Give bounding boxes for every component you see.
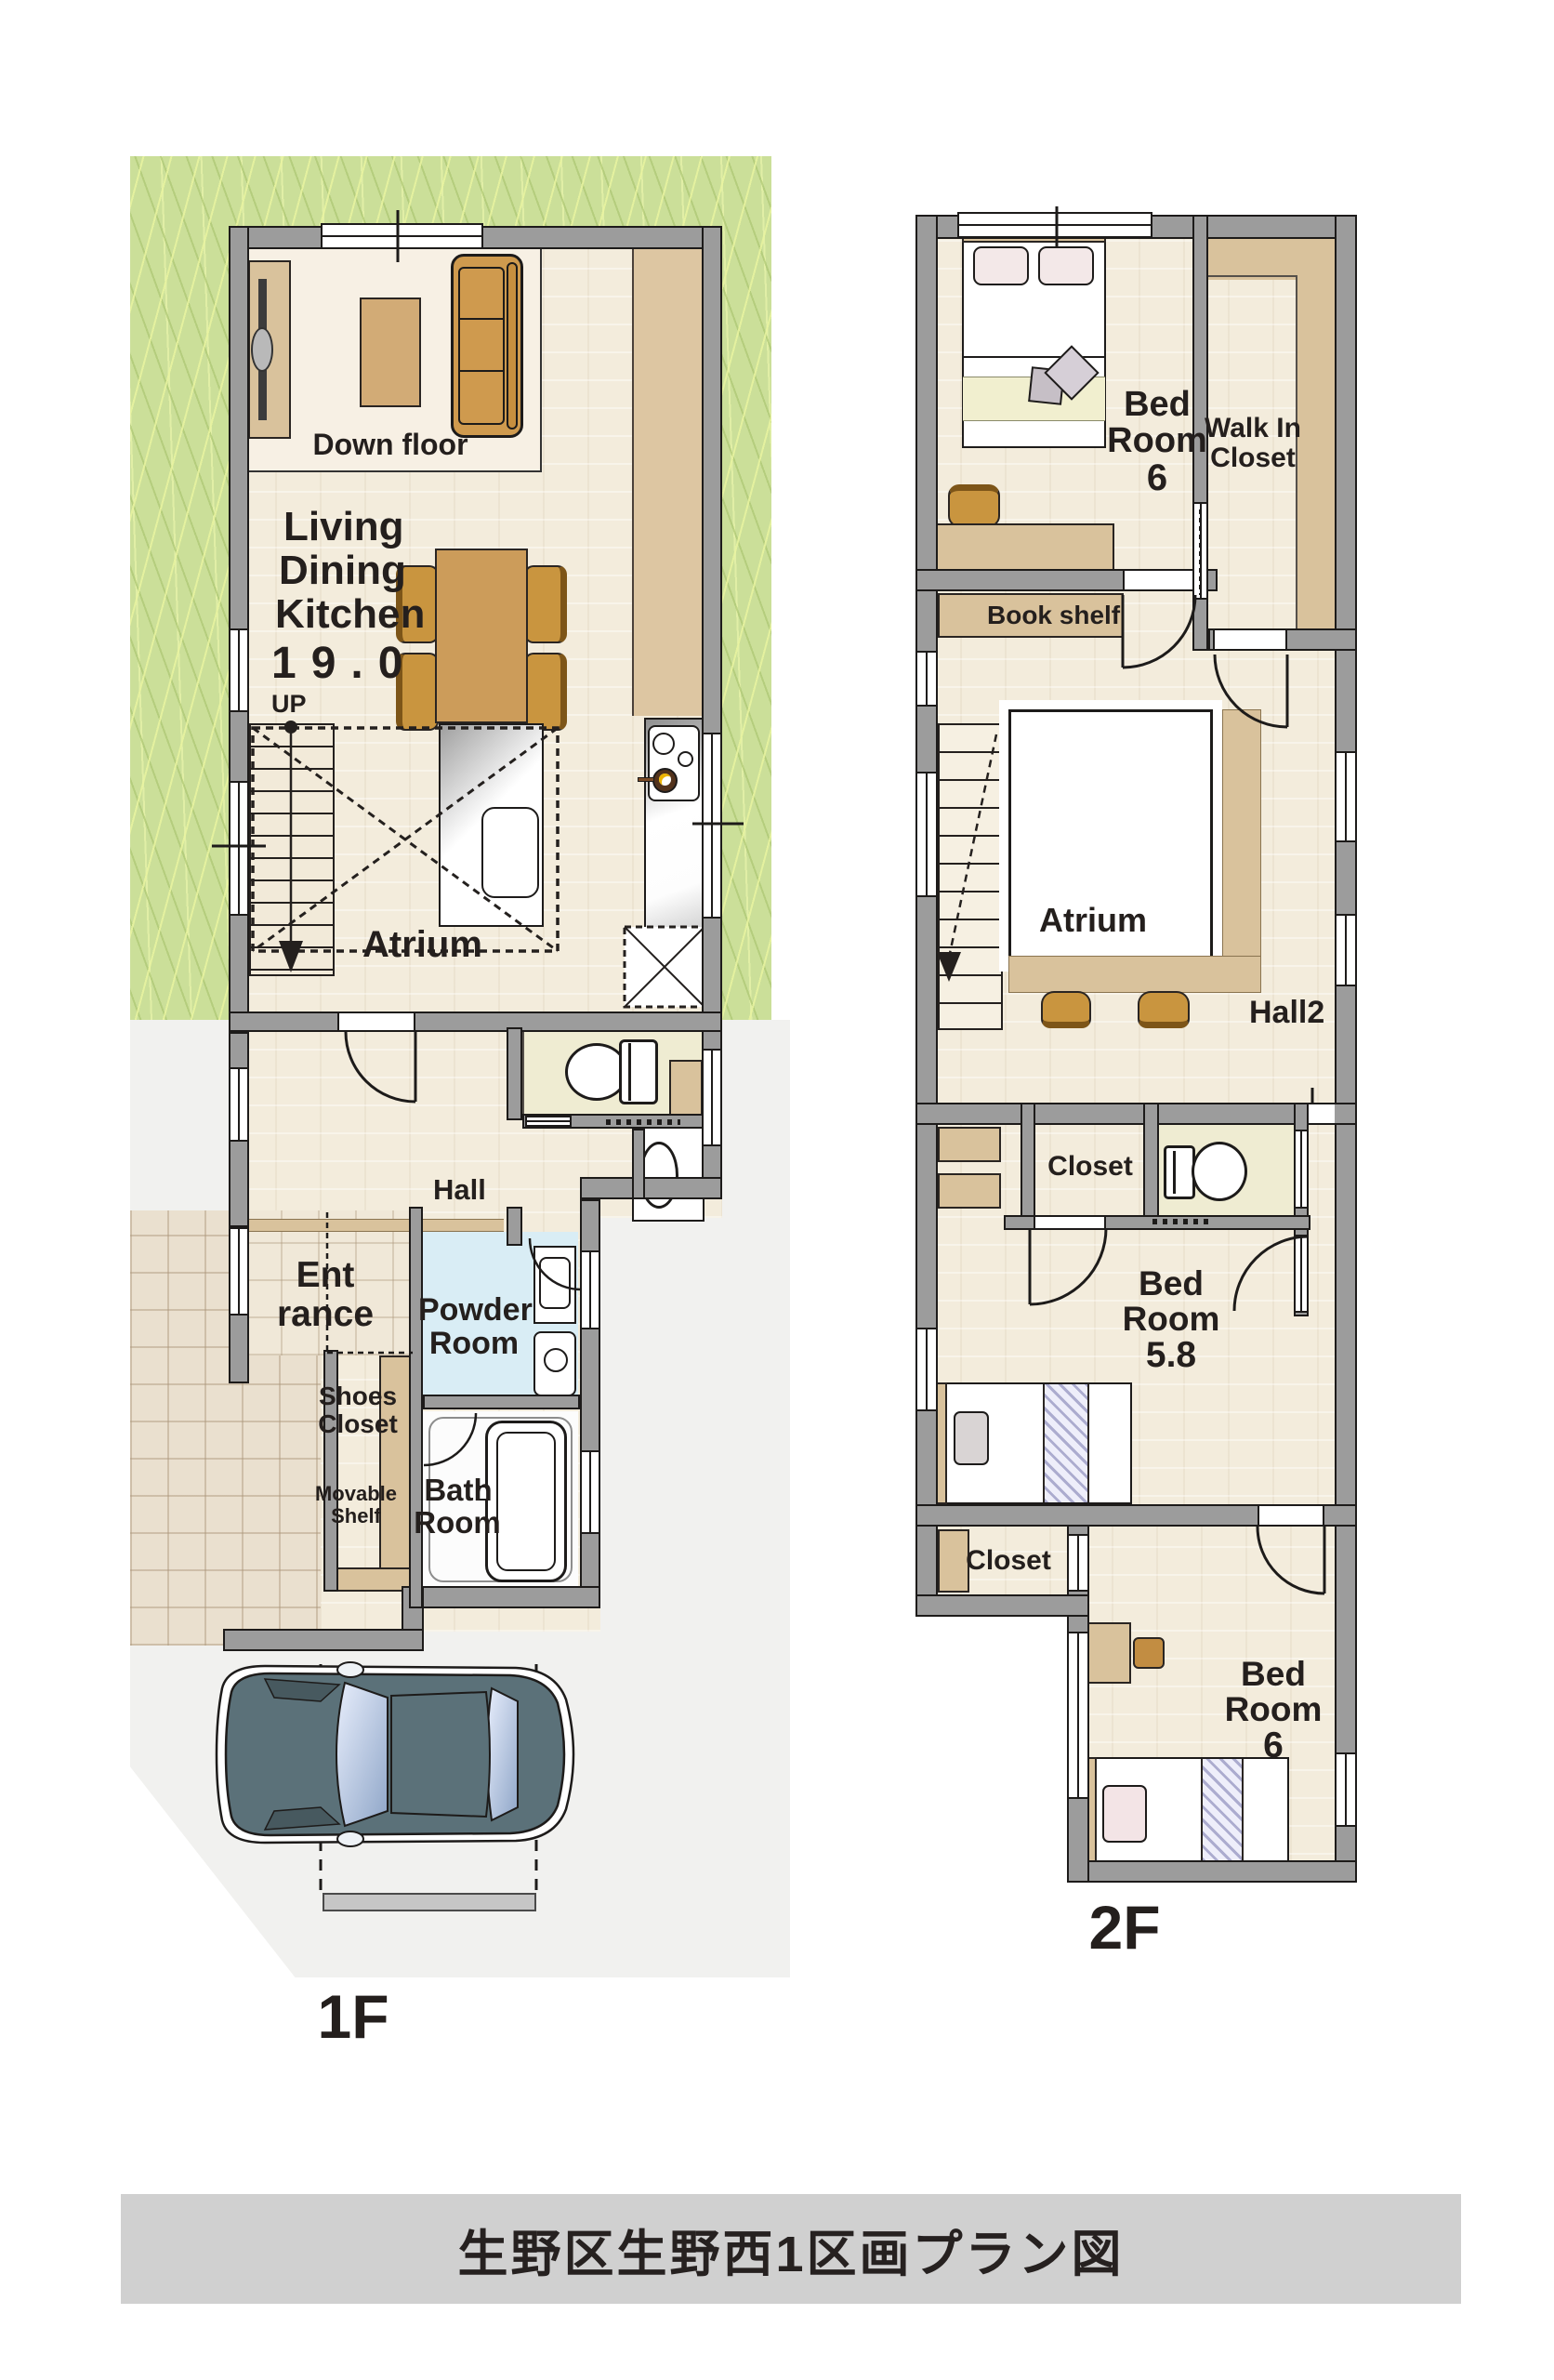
toilet-bowl-2f [1192,1142,1247,1201]
tv-lens [251,327,273,372]
bedroom6-stool [1133,1637,1165,1669]
dining-chair [524,653,567,731]
wall [229,1311,249,1383]
car-roof [391,1692,490,1817]
fried-egg-icon [659,773,671,786]
car-rear-window [487,1688,518,1820]
wall [423,1395,580,1409]
room-label-closet-bottom: Closet [957,1547,1060,1575]
hall-shelf [938,1173,1001,1209]
counter-chair [1138,991,1190,1028]
door-opening [1213,630,1287,649]
room-label-bath-2: Room [411,1507,504,1538]
room-label-ldk-size: 19.0 [271,641,417,686]
wall [229,1011,722,1032]
window [1067,1632,1089,1799]
sofa-cushion-line2 [458,370,505,372]
wall [580,1177,722,1199]
room-label-bedroom-top-1: Bed [1106,387,1208,422]
wall [1335,215,1357,1883]
dining-table [435,549,528,723]
pan-handle [638,777,654,782]
car-windshield [336,1683,388,1826]
window [1335,1752,1357,1827]
wall [507,1027,522,1120]
window [1335,914,1357,986]
door-opening [337,1013,415,1030]
window [1335,751,1357,842]
room-label-ldk-living: Living [283,507,404,548]
room-label-entrance-2: rance [270,1296,381,1332]
room-label-bedroom-top-size: 6 [1106,459,1208,496]
study-counter-bottom [1008,956,1261,993]
window [702,733,722,919]
blanket-hatched [1043,1384,1089,1502]
room-label-powder-1: Powder [418,1294,530,1326]
pillow [954,1411,989,1465]
door-leaf [1294,1235,1309,1313]
floor-plan-canvas: Down floor Living Dining Kitchen 19.0 UP… [0,0,1554,2380]
door-opening [1034,1217,1106,1228]
entrance-door [229,1227,249,1316]
toilet-tank-line-2f [1173,1151,1176,1194]
sliding-door [1192,502,1208,600]
counter-chair [1041,991,1091,1028]
room-label-hall2: Hall2 [1249,997,1324,1028]
room-label-wic-2: Closet [1197,444,1309,472]
coffee-table [360,297,421,407]
room-label-atrium-1f: Atrium [362,926,482,963]
room-label-shoes-1: Shoes [316,1383,400,1409]
room-label-bedroom-mid-size: 5.8 [1115,1337,1227,1373]
room-label-bookshelf: Book shelf [987,602,1120,628]
window [957,212,1152,238]
room-label-shoes-2: Closet [316,1411,400,1437]
door-opening [1309,1104,1335,1123]
window [915,651,938,707]
room-label-hall: Hall [433,1175,486,1204]
room-label-ldk-kitchen: Kitchen [275,594,425,635]
room-label-closet-mid: Closet [1035,1153,1145,1181]
window [915,772,938,897]
car-hood-line [265,1807,339,1830]
study-counter-side [1222,709,1261,993]
room-label-bedroom-bottom-2: Room [1218,1692,1329,1726]
wall [1067,1860,1357,1883]
sofa-cushion-line1 [458,318,505,320]
door-opening [1258,1506,1324,1525]
wall [1143,1103,1159,1227]
hall-shelf [938,1127,1001,1162]
wall [915,1103,1357,1125]
room-label-bath-1: Bath [416,1474,500,1505]
stairs-1f [249,723,335,976]
floor1-label: 1F [279,1986,428,2047]
sofa-cushions [458,267,505,425]
bathtub-inner [496,1432,556,1571]
toilet-tank-1f [619,1039,658,1104]
sofa-back [507,262,518,430]
pillow [973,246,1029,285]
sliding-door [525,1116,572,1127]
pillow [1038,246,1094,285]
window [229,628,249,712]
toilet-tank-line-1f [628,1043,631,1101]
room-label-atrium-2f: Atrium [1039,904,1147,937]
window [580,1250,600,1329]
plan-title-text: 生野区生野西1区画プラン図 [457,2213,1124,2286]
door-opening [1123,571,1197,589]
room-label-bedroom-mid-2: Room [1115,1302,1227,1336]
room-label-wic-1: Walk In [1197,415,1309,443]
stove-burner-large [652,733,675,755]
window [702,1049,722,1146]
wall [632,1129,645,1199]
toilet-cabinet-1f [669,1060,703,1119]
blanket-hatched [1201,1759,1244,1861]
room-label-down-floor: Down floor [297,430,483,459]
window [229,1067,249,1142]
car-mirror [337,1831,363,1846]
car [209,1660,579,1848]
door-leaf [1294,1130,1309,1209]
toilet-tank-2f [1164,1145,1195,1199]
car-body [226,1673,564,1835]
window [229,781,249,916]
stove-burner-small [678,751,693,767]
bedroom-desk [934,523,1114,572]
stairs-2f [938,723,1003,1030]
window [580,1450,600,1534]
stair-up-label: UP [271,692,307,717]
room-label-powder-2: Room [418,1328,530,1359]
window [915,1328,938,1411]
room-label-movable-2: Shelf [314,1506,398,1527]
wall [507,1207,522,1246]
wall [1021,1103,1035,1227]
car-hood-line [265,1679,339,1701]
window [321,223,483,249]
wall [402,1586,600,1608]
car-mirror [337,1662,363,1677]
sliding-door [1067,1534,1089,1592]
floor2-label: 2F [1050,1897,1199,1958]
wall [409,1207,423,1608]
desk-chair [948,484,1000,527]
room-label-bedroom-bottom-1: Bed [1218,1657,1329,1691]
powder-sink-basin [539,1257,571,1309]
washing-machine-drum [544,1348,568,1372]
room-label-bedroom-mid-1: Bed [1115,1266,1227,1301]
pillow [1102,1785,1147,1843]
kitchen-cabinet-band [632,249,704,716]
room-label-bedroom-top-2: Room [1106,423,1208,458]
plan-title-bar: 生野区生野西1区画プラン図 [121,2194,1461,2304]
dining-chair [524,565,567,643]
room-label-movable-1: Movable [314,1484,398,1504]
wall [223,1629,424,1651]
wall [915,1594,1089,1617]
room-label-ldk-dining: Dining [279,550,406,591]
car-trim [217,1666,573,1843]
bedroom6-desk [1083,1622,1131,1684]
island-sink [481,807,539,898]
room-label-entrance-1: Ent [270,1257,381,1293]
entrance-step-strip [232,1219,504,1232]
room-label-bedroom-bottom-size: 6 [1218,1727,1329,1764]
parking-curb [323,1893,536,1911]
